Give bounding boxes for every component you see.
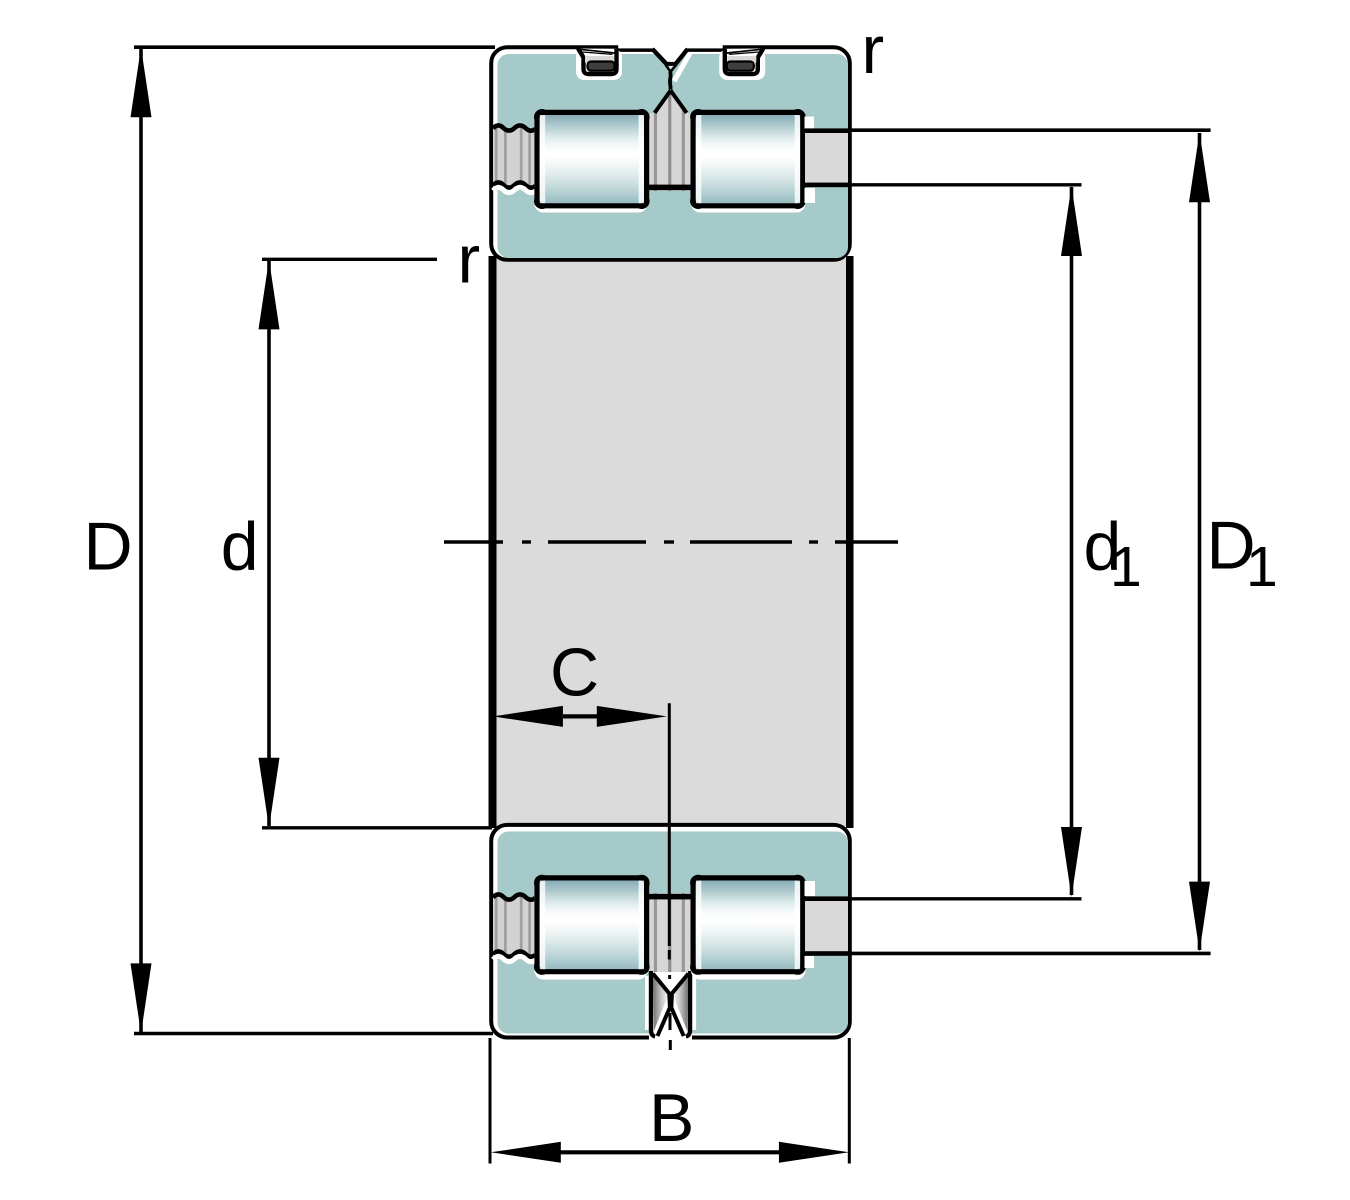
svg-text:r: r [458, 222, 481, 298]
svg-text:r: r [862, 12, 885, 88]
svg-text:B: B [649, 1080, 694, 1156]
svg-text:1: 1 [1246, 535, 1278, 599]
svg-text:D: D [84, 509, 133, 585]
svg-text:1: 1 [1110, 535, 1142, 599]
svg-text:C: C [550, 635, 599, 711]
svg-text:d: d [221, 509, 259, 585]
